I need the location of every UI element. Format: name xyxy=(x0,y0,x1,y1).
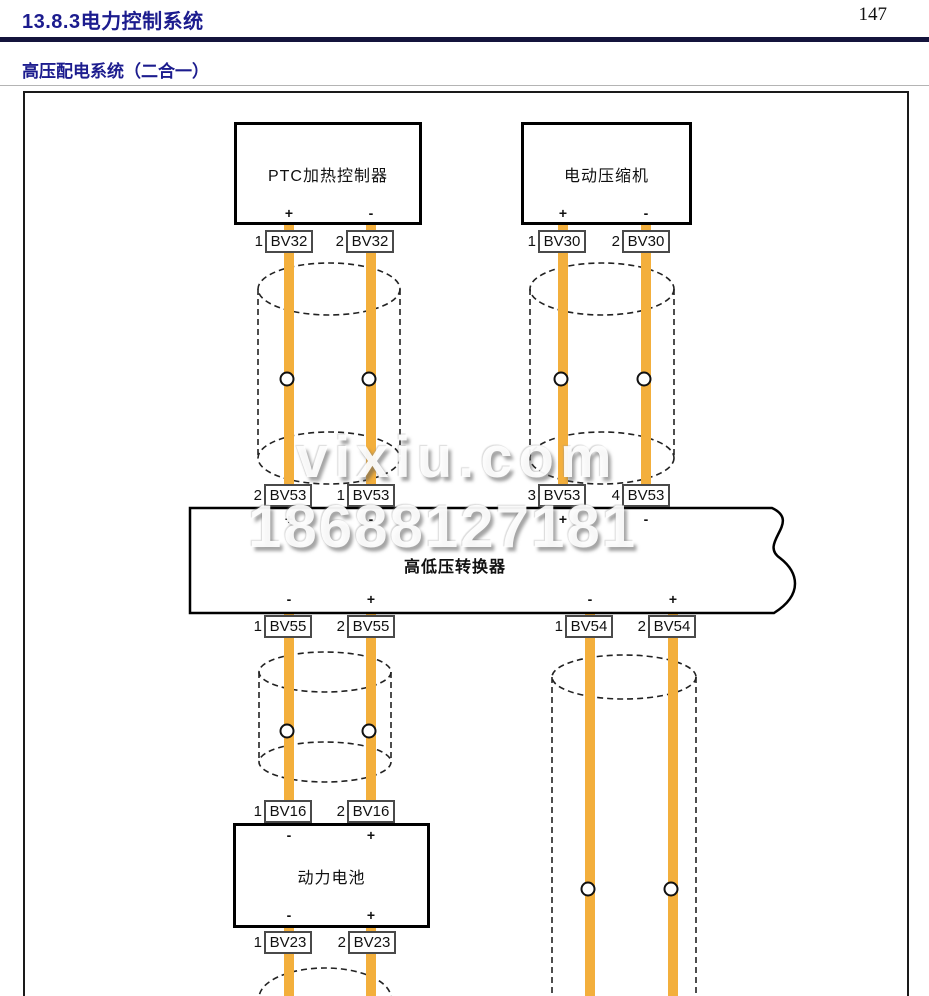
compressor-terminal-minus: - xyxy=(644,206,649,220)
connector-bv53-pin3: 3 BV53 xyxy=(520,484,586,507)
diagram-frame xyxy=(23,91,909,996)
component-ptc-heater: PTC加热控制器 xyxy=(234,122,422,225)
component-electric-compressor: 电动压缩机 xyxy=(521,122,692,225)
battery-bottom-terminal-plus: + xyxy=(367,908,375,922)
connector-tag: BV16 xyxy=(264,800,312,823)
pin-number: 1 xyxy=(520,230,538,253)
manual-page: 13.8.3电力控制系统 147 高压配电系统（二合一） xyxy=(0,0,929,996)
connector-bv16-pin1: 1 BV16 xyxy=(246,800,312,823)
pin-number: 2 xyxy=(630,615,648,638)
connector-tag: BV53 xyxy=(538,484,586,507)
connector-bv55-pin1: 1 BV55 xyxy=(246,615,312,638)
pin-number: 1 xyxy=(246,800,264,823)
connector-tag: BV16 xyxy=(347,800,395,823)
converter-bottom-terminal-1: - xyxy=(287,592,292,606)
connector-bv23-pin2: 2 BV23 xyxy=(330,931,396,954)
connector-bv53-pin4: 4 BV53 xyxy=(604,484,670,507)
pin-number: 2 xyxy=(329,615,347,638)
compressor-label: 电动压缩机 xyxy=(564,162,649,186)
subtitle-divider xyxy=(0,85,929,86)
ptc-heater-label: PTC加热控制器 xyxy=(268,162,388,186)
connector-bv16-pin2: 2 BV16 xyxy=(329,800,395,823)
section-title: 13.8.3电力控制系统 xyxy=(22,5,204,34)
connector-tag: BV54 xyxy=(648,615,696,638)
ptc-terminal-plus: + xyxy=(285,206,293,220)
converter-bottom-terminal-3: - xyxy=(588,592,593,606)
converter-top-terminal-2: - xyxy=(369,512,374,526)
connector-tag: BV30 xyxy=(622,230,670,253)
compressor-terminal-plus: + xyxy=(559,206,567,220)
pin-number: 2 xyxy=(604,230,622,253)
connector-bv30-pin1: 1 BV30 xyxy=(520,230,586,253)
pin-number: 1 xyxy=(246,931,264,954)
pin-number: 2 xyxy=(330,931,348,954)
battery-top-terminal-plus: + xyxy=(367,828,375,842)
converter-bottom-terminal-4: + xyxy=(669,592,677,606)
connector-bv32-pin2: 2 BV32 xyxy=(328,230,394,253)
connector-tag: BV23 xyxy=(348,931,396,954)
pin-number: 2 xyxy=(246,484,264,507)
connector-bv54-pin2: 2 BV54 xyxy=(630,615,696,638)
converter-top-terminal-3: + xyxy=(559,512,567,526)
connector-tag: BV23 xyxy=(264,931,312,954)
converter-label: 高低压转换器 xyxy=(404,553,506,577)
battery-bottom-terminal-minus: - xyxy=(287,908,292,922)
pin-number: 2 xyxy=(328,230,346,253)
pin-number: 1 xyxy=(329,484,347,507)
pin-number: 1 xyxy=(547,615,565,638)
ptc-terminal-minus: - xyxy=(369,206,374,220)
connector-tag: BV53 xyxy=(622,484,670,507)
converter-bottom-terminal-2: + xyxy=(367,592,375,606)
battery-top-terminal-minus: - xyxy=(287,828,292,842)
diagram-subtitle: 高压配电系统（二合一） xyxy=(22,57,209,82)
connector-tag: BV32 xyxy=(346,230,394,253)
connector-tag: BV53 xyxy=(347,484,395,507)
pin-number: 1 xyxy=(246,615,264,638)
connector-tag: BV54 xyxy=(565,615,613,638)
converter-top-terminal-4: - xyxy=(644,512,649,526)
connector-tag: BV53 xyxy=(264,484,312,507)
pin-number: 3 xyxy=(520,484,538,507)
connector-tag: BV32 xyxy=(265,230,313,253)
connector-bv54-pin1: 1 BV54 xyxy=(547,615,613,638)
header-divider xyxy=(0,37,929,42)
connector-bv53-pin1: 1 BV53 xyxy=(329,484,395,507)
connector-bv55-pin2: 2 BV55 xyxy=(329,615,395,638)
connector-tag: BV30 xyxy=(538,230,586,253)
connector-bv53-pin2: 2 BV53 xyxy=(246,484,312,507)
connector-bv32-pin1: 1 BV32 xyxy=(247,230,313,253)
connector-tag: BV55 xyxy=(264,615,312,638)
page-number: 147 xyxy=(859,4,888,26)
pin-number: 1 xyxy=(247,230,265,253)
battery-label: 动力电池 xyxy=(297,864,365,888)
connector-bv30-pin2: 2 BV30 xyxy=(604,230,670,253)
connector-bv23-pin1: 1 BV23 xyxy=(246,931,312,954)
component-power-battery: 动力电池 xyxy=(233,823,430,928)
pin-number: 4 xyxy=(604,484,622,507)
converter-top-terminal-1: + xyxy=(285,512,293,526)
pin-number: 2 xyxy=(329,800,347,823)
connector-tag: BV55 xyxy=(347,615,395,638)
